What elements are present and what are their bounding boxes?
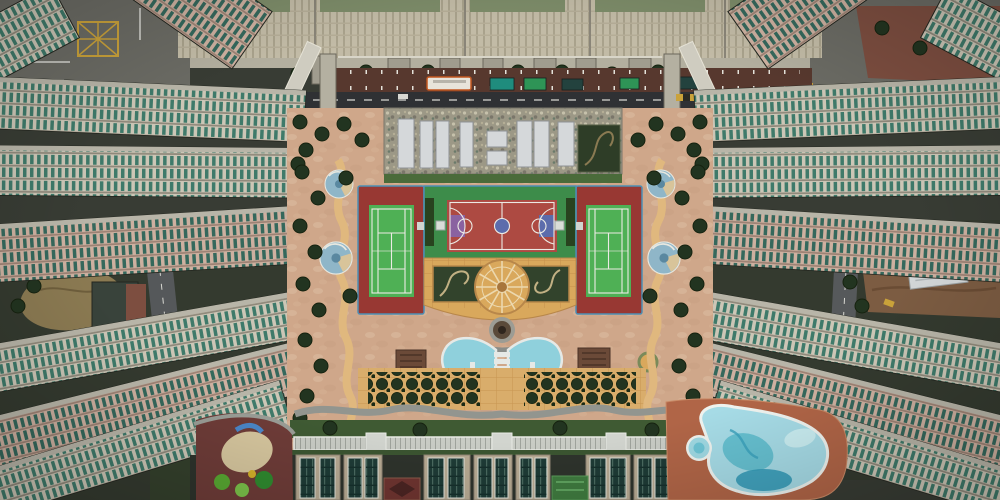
vignette-overlay <box>0 0 1000 500</box>
aerial-photograph <box>0 0 1000 500</box>
screenshot-root <box>0 0 1000 500</box>
